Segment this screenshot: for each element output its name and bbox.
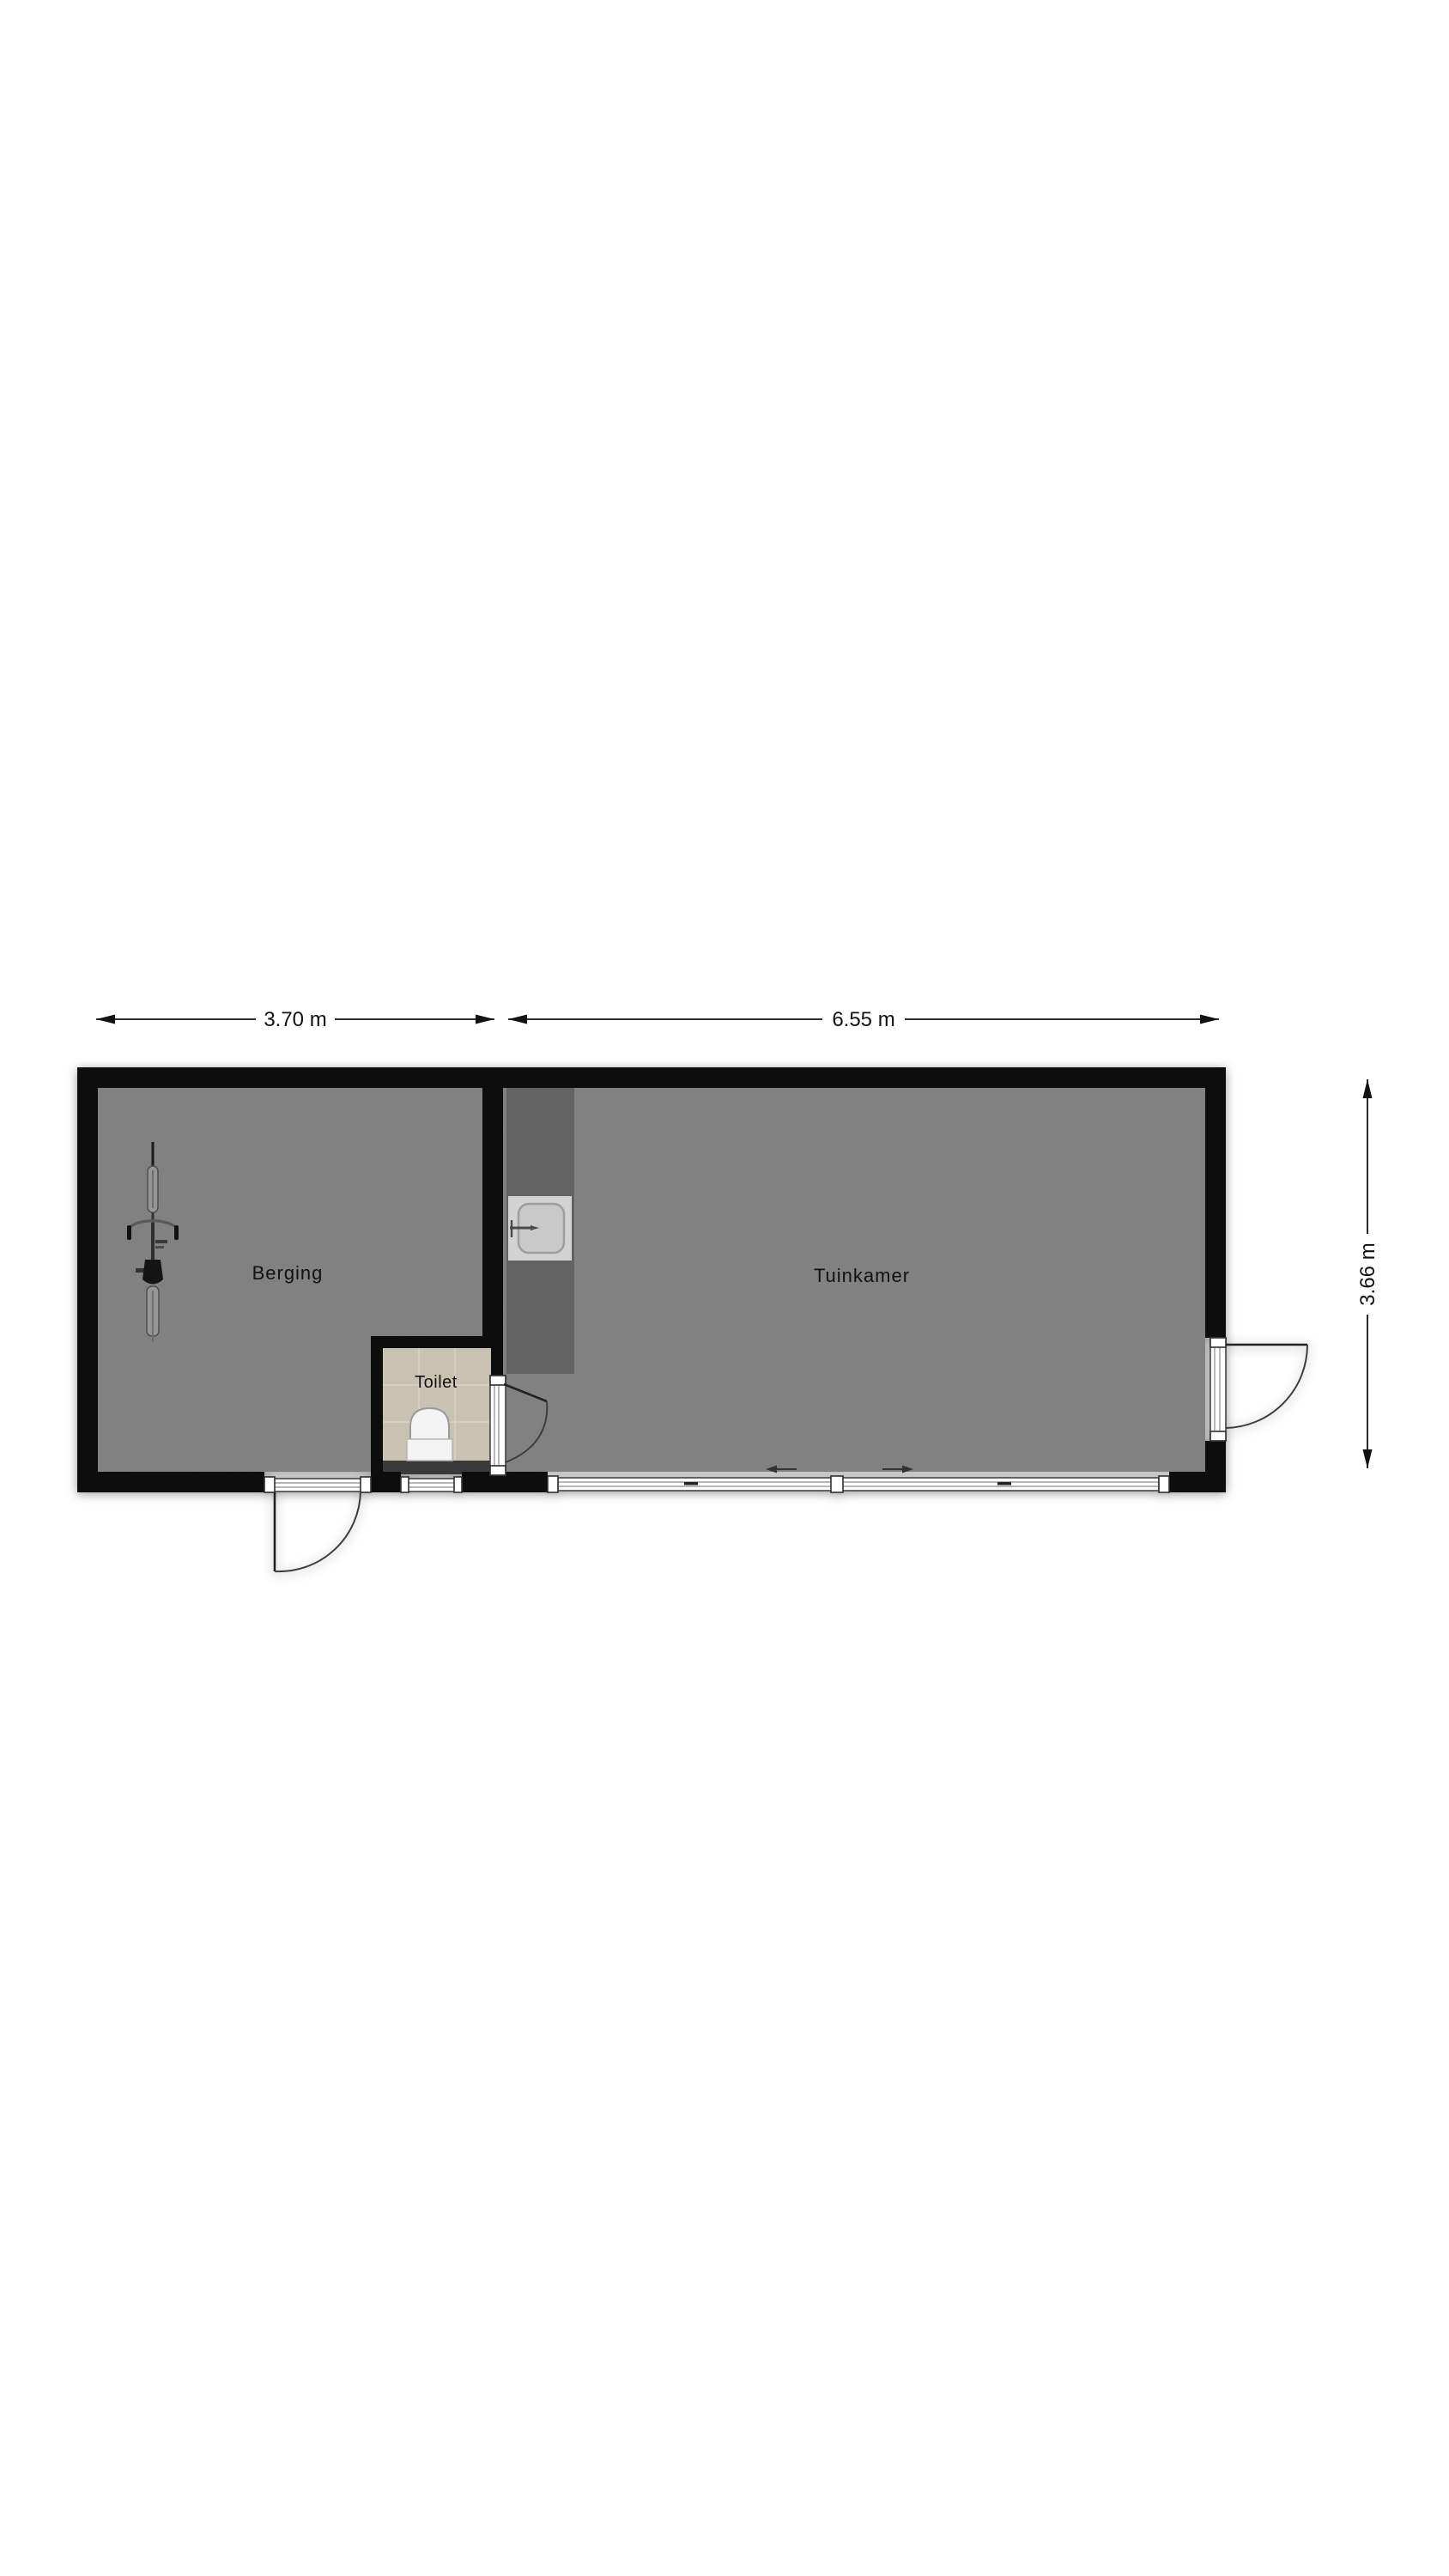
door-swing-icon bbox=[275, 1492, 361, 1571]
dimension-arrow-icon bbox=[508, 1015, 527, 1024]
dimension-label-height: 3.66 m bbox=[1356, 1242, 1379, 1305]
room-label-toilet: Toilet bbox=[415, 1373, 458, 1392]
dimension-right: 3.66 m bbox=[1356, 1079, 1379, 1468]
door-jamb-cap bbox=[264, 1477, 275, 1492]
wall-bottom-seg1 bbox=[77, 1472, 264, 1492]
toilet-room bbox=[383, 1348, 491, 1474]
sliding-door-handle bbox=[684, 1482, 698, 1485]
wall-top bbox=[77, 1067, 1226, 1088]
toilet-tank bbox=[407, 1439, 452, 1461]
sliding-door-handle bbox=[997, 1482, 1011, 1485]
wall-toilet-top bbox=[371, 1336, 503, 1348]
door-jamb-cap bbox=[361, 1477, 371, 1492]
dimension-arrow-icon bbox=[476, 1015, 494, 1024]
right-door-frame bbox=[1210, 1338, 1226, 1441]
berging-entry-door bbox=[264, 1477, 371, 1571]
dimension-arrow-icon bbox=[1200, 1015, 1219, 1024]
sliding-door-end-cap bbox=[1159, 1476, 1169, 1492]
wall-toilet-right bbox=[491, 1336, 503, 1376]
kitchen-sink-icon bbox=[508, 1196, 572, 1261]
wall-left bbox=[77, 1067, 98, 1492]
sliding-door-junction-cap bbox=[831, 1476, 843, 1492]
wall-toilet-left bbox=[371, 1336, 383, 1474]
building: Berging Tuinkamer Toilet bbox=[77, 1067, 1307, 1571]
door-sill bbox=[264, 1479, 371, 1492]
window-icon bbox=[401, 1477, 462, 1492]
toilet-window bbox=[401, 1477, 462, 1492]
toilet-icon bbox=[407, 1408, 452, 1461]
wall-bottom-seg2 bbox=[371, 1472, 401, 1492]
toilet-door-frame bbox=[490, 1376, 506, 1475]
sliding-door-glazing bbox=[558, 1478, 1159, 1491]
room-label-tuinkamer: Tuinkamer bbox=[814, 1265, 910, 1286]
dimension-top-left: 3.70 m bbox=[96, 1008, 494, 1031]
floorplan-canvas: Berging Tuinkamer Toilet 3.70 m 6.55 m 3… bbox=[0, 0, 1449, 2576]
dimension-top-right: 6.55 m bbox=[508, 1008, 1219, 1031]
door-swing-icon bbox=[1226, 1345, 1307, 1428]
sliding-door-end-cap bbox=[548, 1476, 558, 1492]
dimension-arrow-icon bbox=[1363, 1449, 1373, 1468]
tuinkamer-entry-door bbox=[1210, 1338, 1307, 1441]
dimension-arrow-icon bbox=[1363, 1079, 1373, 1098]
dimension-label-width-berging: 3.70 m bbox=[264, 1008, 326, 1031]
dimension-arrow-icon bbox=[96, 1015, 115, 1024]
room-label-berging: Berging bbox=[252, 1262, 324, 1284]
wall-right-seg1 bbox=[1205, 1067, 1226, 1338]
wall-right-seg2 bbox=[1205, 1441, 1226, 1492]
dimension-label-width-tuinkamer: 6.55 m bbox=[832, 1008, 894, 1031]
kitchen-counter bbox=[506, 1088, 574, 1374]
wall-divider bbox=[482, 1088, 503, 1336]
